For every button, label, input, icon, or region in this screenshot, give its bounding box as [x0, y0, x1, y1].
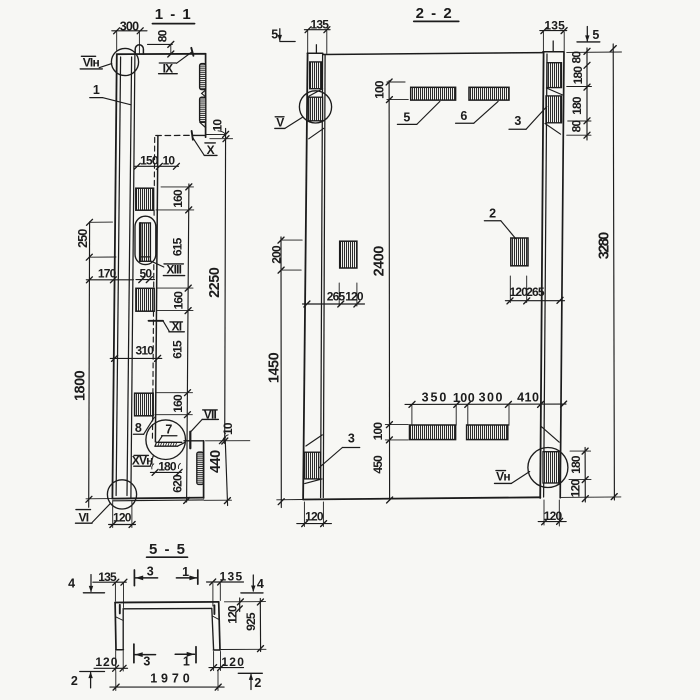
svg-text:160: 160	[171, 291, 185, 310]
svg-text:925: 925	[244, 612, 258, 631]
svg-text:X: X	[207, 143, 215, 157]
svg-text:3: 3	[143, 654, 150, 668]
svg-text:265: 265	[526, 285, 545, 299]
svg-text:160: 160	[171, 189, 185, 208]
svg-text:170: 170	[98, 267, 117, 281]
svg-text:80: 80	[155, 29, 169, 42]
svg-text:1800: 1800	[73, 370, 89, 401]
svg-text:1970: 1970	[150, 671, 193, 685]
svg-text:2250: 2250	[207, 267, 223, 298]
svg-text:10: 10	[163, 153, 176, 167]
svg-text:2 - 2: 2 - 2	[416, 5, 454, 22]
svg-text:VI: VI	[79, 510, 89, 524]
svg-text:10: 10	[210, 119, 224, 132]
svg-text:5 - 5: 5 - 5	[149, 541, 187, 558]
svg-text:120: 120	[345, 290, 364, 304]
svg-text:2: 2	[71, 674, 78, 688]
svg-text:450: 450	[371, 455, 385, 474]
svg-text:3: 3	[147, 564, 154, 578]
svg-text:8: 8	[135, 421, 142, 435]
svg-text:5: 5	[271, 27, 278, 41]
svg-text:1 - 1: 1 - 1	[155, 6, 193, 23]
svg-text:1: 1	[93, 83, 100, 97]
svg-text:2: 2	[489, 207, 496, 221]
svg-text:1: 1	[183, 654, 190, 668]
svg-text:180: 180	[571, 66, 585, 85]
svg-text:4: 4	[68, 576, 75, 590]
svg-text:310: 310	[135, 344, 154, 358]
svg-text:3: 3	[514, 114, 521, 128]
svg-text:XIII: XIII	[166, 263, 181, 277]
svg-text:300: 300	[479, 391, 504, 405]
svg-text:410: 410	[517, 391, 539, 405]
svg-text:615: 615	[171, 237, 185, 256]
svg-text:3280: 3280	[597, 232, 613, 259]
svg-text:160: 160	[171, 394, 185, 413]
svg-text:2: 2	[254, 676, 261, 690]
svg-text:150: 150	[140, 153, 159, 167]
svg-text:100: 100	[371, 422, 385, 441]
svg-text:250: 250	[76, 229, 90, 248]
svg-text:100: 100	[453, 391, 475, 405]
svg-text:615: 615	[170, 340, 184, 359]
svg-text:7: 7	[165, 423, 172, 437]
svg-text:620: 620	[170, 474, 184, 493]
svg-text:120: 120	[95, 655, 118, 669]
svg-text:180: 180	[158, 459, 177, 473]
svg-text:2400: 2400	[372, 246, 388, 277]
svg-text:180: 180	[570, 96, 584, 115]
svg-text:120: 120	[568, 479, 582, 498]
svg-text:10: 10	[221, 422, 235, 435]
svg-text:100: 100	[372, 80, 386, 99]
svg-text:180: 180	[569, 455, 583, 474]
svg-text:1450: 1450	[266, 352, 282, 383]
svg-text:1: 1	[182, 565, 189, 579]
svg-text:Vн: Vн	[496, 470, 510, 484]
svg-text:5: 5	[592, 28, 599, 42]
svg-text:4: 4	[257, 577, 264, 591]
svg-text:5: 5	[403, 110, 410, 124]
svg-text:VIн: VIн	[83, 56, 100, 70]
svg-text:120: 120	[226, 605, 240, 624]
svg-text:440: 440	[208, 450, 224, 473]
svg-text:6: 6	[460, 109, 467, 123]
svg-text:350: 350	[422, 391, 449, 405]
svg-text:3: 3	[348, 431, 355, 445]
